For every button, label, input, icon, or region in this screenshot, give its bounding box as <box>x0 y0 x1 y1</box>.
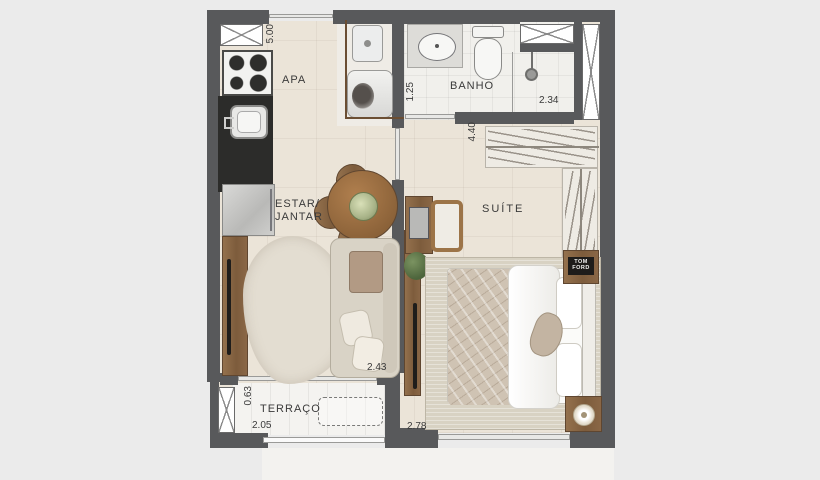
suite-door <box>395 128 400 180</box>
dim-terrace-width: 2.05 <box>252 420 271 431</box>
wall-bottom-left-corner <box>210 433 268 448</box>
closet-rod <box>486 146 599 148</box>
lamp-finial-icon <box>581 412 587 418</box>
shaft-right <box>582 24 600 120</box>
living-tv-icon <box>227 259 231 355</box>
wall-terrace-suite-divider <box>385 373 400 448</box>
outside-paving <box>262 448 614 480</box>
entry-door <box>269 14 333 18</box>
terrace-railing <box>263 437 385 443</box>
wall-right <box>600 10 615 448</box>
wall-corridor-upper <box>392 22 404 128</box>
floor-plan: TOM FORD APA BANHO SUÍTE ESTAR/ JANTAR T… <box>205 8 617 448</box>
fridge-handle <box>270 189 272 231</box>
wall-left <box>207 10 220 382</box>
sofa-throw-pillow <box>349 251 383 293</box>
shower-head-line <box>531 52 533 69</box>
room-label-suite: SUÍTE <box>482 203 524 215</box>
washer-door-icon <box>352 83 374 109</box>
shower-drain-icon <box>525 68 538 81</box>
room-label-banho: BANHO <box>450 80 494 92</box>
kitchen-sink <box>230 105 268 139</box>
closet-top <box>485 126 598 168</box>
dim-top-width: 5.00 <box>265 24 276 43</box>
room-label-estar: ESTAR/ JANTAR <box>275 198 323 224</box>
bed-headboard <box>582 271 596 403</box>
dining-table <box>327 170 398 241</box>
refrigerator <box>222 184 275 236</box>
dim-terrace-depth: 0.63 <box>243 386 254 405</box>
bed <box>447 268 595 404</box>
washing-machine <box>347 70 393 118</box>
table-plant-icon <box>349 192 378 221</box>
tub-drain-icon <box>364 40 371 47</box>
laptop-icon <box>409 207 429 239</box>
book-title-line2: FORD <box>568 266 594 272</box>
toilet <box>472 26 504 82</box>
shaft-top-right <box>520 24 574 44</box>
dim-living-width: 2.43 <box>367 362 386 373</box>
laundry-tub <box>352 25 383 62</box>
bed-pillow <box>556 343 582 397</box>
desk <box>405 196 433 254</box>
cooktop <box>222 50 273 96</box>
toilet-bowl <box>474 38 502 80</box>
toilet-tank <box>472 26 504 38</box>
bed-blanket <box>448 269 514 405</box>
suite-tv-icon <box>413 303 417 389</box>
shaft-top-left <box>220 24 263 46</box>
desk-chair <box>431 200 463 252</box>
pillar-terrace <box>218 387 235 433</box>
wall-top-right-thin <box>520 10 600 22</box>
wall-shower-right <box>574 22 582 120</box>
wall-top-bath <box>404 10 520 24</box>
sofa-backrest <box>383 243 397 373</box>
faucet-icon <box>224 117 234 129</box>
nightstand-bottom <box>565 396 602 432</box>
dim-suite-width: 2.78 <box>407 421 426 432</box>
room-label-apa: APA <box>282 74 306 86</box>
dim-suite-depth: 4.40 <box>467 122 478 141</box>
tom-ford-book: TOM FORD <box>568 257 594 275</box>
laundry-door-track <box>345 20 347 119</box>
bath-vanity <box>407 24 463 68</box>
room-label-estar-line2: JANTAR <box>275 211 323 224</box>
bathroom-door <box>405 114 455 119</box>
laundry-door-track-b <box>345 117 404 119</box>
room-label-estar-line1: ESTAR/ <box>275 198 323 211</box>
sofa <box>330 238 400 378</box>
dim-shower-width: 2.34 <box>539 95 558 106</box>
room-label-terraco: TERRAÇO <box>260 403 321 415</box>
sink-basin <box>237 111 261 133</box>
nightstand-top: TOM FORD <box>563 250 599 284</box>
terrace-optional-furniture <box>318 397 383 426</box>
wall-under-shaft <box>520 44 574 52</box>
suite-window <box>438 434 570 440</box>
dim-bath-depth: 1.25 <box>405 82 416 101</box>
bath-faucet-icon <box>435 44 439 48</box>
